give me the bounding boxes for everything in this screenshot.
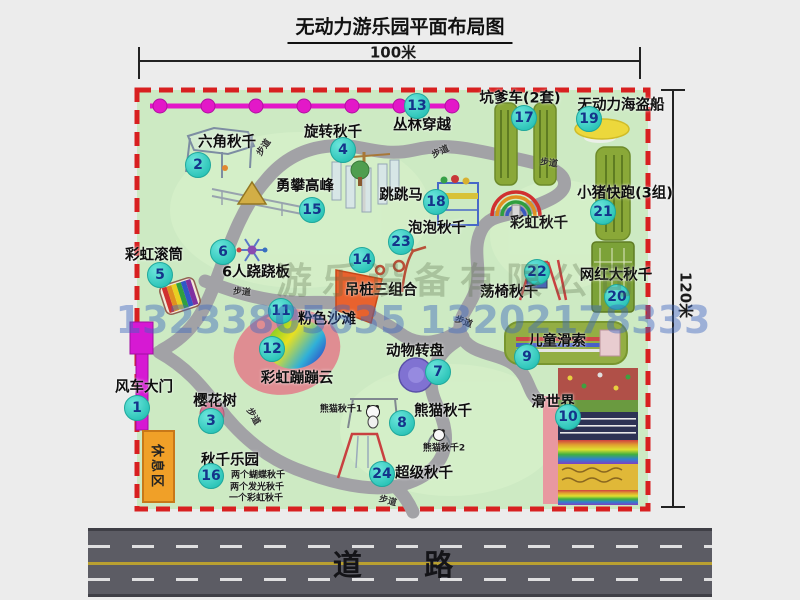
marker-badge-19: 19: [576, 106, 602, 132]
marker-badge-5: 5: [147, 262, 173, 288]
rest-area: 休息区: [142, 430, 175, 503]
marker-label-4: 旋转秋千: [304, 121, 362, 142]
marker-badge-24: 24: [369, 461, 395, 487]
extra-label-2: 熊猫秋千2: [423, 441, 465, 454]
marker-badge-1: 1: [124, 395, 150, 421]
extra-label-1: 熊猫秋千1: [320, 402, 362, 415]
marker-badge-3: 3: [198, 408, 224, 434]
marker-badge-8: 8: [389, 410, 415, 436]
dimension-width-label: 100米: [370, 42, 416, 63]
extra-label-5: 一个彩虹秋千: [229, 491, 283, 504]
page-title: 无动力游乐园平面布局图: [287, 12, 512, 44]
path-label-3: 步道: [232, 284, 251, 299]
marker-badge-2: 2: [185, 152, 211, 178]
extra-label-0: 彩虹秋千: [510, 212, 568, 233]
marker-badge-9: 9: [514, 344, 540, 370]
path-label-2: 步道: [539, 154, 559, 169]
marker-label-24: 超级秋千: [395, 462, 453, 483]
park-layout-poster: 无动力游乐园平面布局图 100米 120米: [0, 0, 800, 600]
marker-label-18: 跳跳马: [379, 184, 423, 205]
marker-badge-21: 21: [590, 199, 616, 225]
marker-badge-13: 13: [404, 93, 430, 119]
marker-label-8: 熊猫秋千: [414, 400, 472, 421]
marker-badge-18: 18: [423, 189, 449, 215]
road-label: 道 路: [333, 542, 467, 584]
marker-badge-7: 7: [425, 359, 451, 385]
road: 道 路: [88, 528, 712, 597]
marker-label-23: 泡泡秋千: [408, 217, 466, 238]
marker-label-17: 坑爹车(2套): [479, 87, 560, 108]
marker-badge-10: 10: [555, 404, 581, 430]
rest-area-label: 休息区: [149, 444, 168, 489]
marker-label-2: 六角秋千: [198, 131, 256, 152]
marker-label-7: 动物转盘: [386, 340, 444, 361]
watermark-company: 游乐设备有限公司: [276, 252, 644, 304]
marker-label-3: 樱花树: [193, 390, 237, 411]
marker-label-21: 小猪快跑(3组): [577, 182, 673, 203]
marker-badge-16: 16: [198, 463, 224, 489]
marker-badge-4: 4: [330, 137, 356, 163]
marker-label-5: 彩虹滚筒: [125, 244, 183, 265]
watermark-phone: 13233805635 13202178333: [116, 298, 711, 342]
marker-badge-15: 15: [299, 197, 325, 223]
marker-label-1: 风车大门: [115, 376, 173, 397]
marker-label-15: 勇攀高峰: [276, 175, 334, 196]
marker-badge-17: 17: [511, 105, 537, 131]
marker-label-12: 彩虹蹦蹦云: [261, 367, 334, 388]
marker-badge-6: 6: [210, 239, 236, 265]
